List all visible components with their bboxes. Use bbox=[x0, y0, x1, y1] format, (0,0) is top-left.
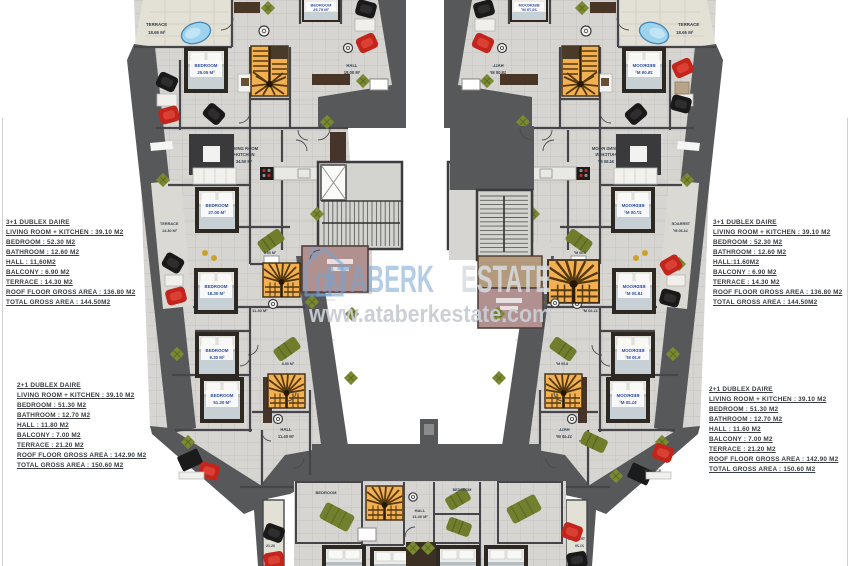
svg-text:34.50 M²: 34.50 M² bbox=[236, 159, 253, 164]
svg-text:HALL: HALL bbox=[346, 63, 358, 68]
svg-text:BEDROOM: BEDROOM bbox=[205, 284, 228, 289]
svg-text:BEDROOM: BEDROOM bbox=[206, 203, 229, 208]
svg-text:BEDROOM: BEDROOM bbox=[211, 393, 234, 398]
svg-text:BEDROOM: BEDROOM bbox=[316, 490, 338, 495]
svg-text:27.00 M²: 27.00 M² bbox=[208, 210, 226, 215]
svg-text:TERRACE: TERRACE bbox=[644, 469, 662, 473]
svg-text:TERRACE: TERRACE bbox=[678, 22, 699, 27]
svg-text:11.40 M²: 11.40 M² bbox=[252, 308, 268, 313]
svg-text:BEDROOM: BEDROOM bbox=[453, 488, 472, 492]
svg-text:ATABERK: ATABERK bbox=[322, 259, 434, 301]
svg-text:9.30 M²: 9.30 M² bbox=[210, 355, 225, 360]
svg-text:8.50 M²: 8.50 M² bbox=[264, 251, 277, 255]
svg-text:8.50 M²: 8.50 M² bbox=[282, 362, 295, 366]
svg-text:+KITCHEN: +KITCHEN bbox=[233, 152, 254, 157]
svg-text:18.65 M²: 18.65 M² bbox=[148, 30, 166, 35]
svg-text:11.40 M²: 11.40 M² bbox=[412, 514, 428, 519]
svg-text:BEDROOM: BEDROOM bbox=[195, 63, 218, 68]
svg-text:LIVING ROOM: LIVING ROOM bbox=[230, 146, 259, 151]
svg-text:TERRACE: TERRACE bbox=[160, 222, 179, 226]
svg-text:HALL: HALL bbox=[415, 508, 426, 513]
svg-text:ESTATE: ESTATE bbox=[461, 259, 551, 301]
svg-text:HALL: HALL bbox=[280, 427, 292, 432]
svg-text:21.20: 21.20 bbox=[266, 544, 275, 548]
svg-text:BEDROOM: BEDROOM bbox=[206, 348, 229, 353]
svg-text:TERRACE: TERRACE bbox=[146, 22, 167, 27]
svg-text:25.05 M²: 25.05 M² bbox=[197, 70, 215, 75]
svg-text:18.65 M²: 18.65 M² bbox=[676, 30, 694, 35]
svg-text:18.30 M²: 18.30 M² bbox=[207, 291, 225, 296]
svg-text:www.ataberkestate.com: www.ataberkestate.com bbox=[308, 301, 551, 328]
svg-text:11.40 M²: 11.40 M² bbox=[278, 434, 295, 439]
svg-text:51.30 M²: 51.30 M² bbox=[213, 400, 231, 405]
svg-text:14.30 M²: 14.30 M² bbox=[162, 229, 178, 233]
svg-text:25.75 M²: 25.75 M² bbox=[313, 7, 329, 12]
